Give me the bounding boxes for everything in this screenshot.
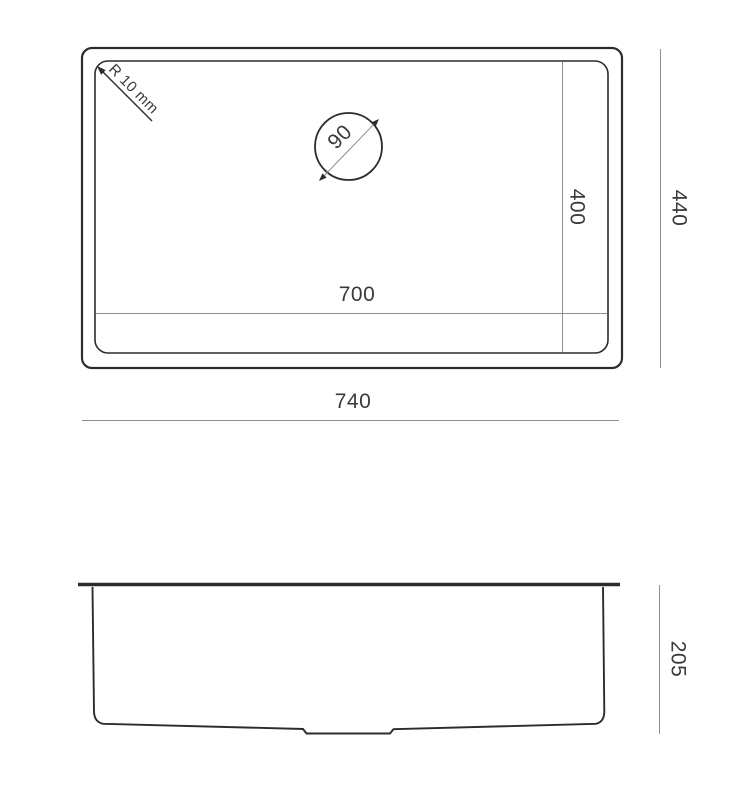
- top-view-outer-rim: [82, 48, 622, 368]
- side-view: 205: [78, 585, 690, 735]
- drain-hole-diameter-label: 90: [323, 120, 356, 153]
- outer-width-label: 740: [335, 390, 372, 413]
- technical-drawing-canvas: 700 400 90 R 10 mm 440 740: [0, 0, 737, 800]
- inner-width-label: 700: [339, 283, 376, 306]
- top-view: 700 400 90 R 10 mm 440 740: [82, 48, 691, 421]
- corner-radius-label: R 10 mm: [105, 61, 162, 118]
- depth-label: 205: [667, 641, 690, 678]
- drain-hole-circle: [315, 113, 382, 180]
- side-view-bowl-profile: [93, 587, 605, 734]
- sink-drawing-svg: 700 400 90 R 10 mm 440 740: [0, 0, 737, 800]
- top-view-inner-bowl: [95, 61, 608, 353]
- outer-height-label: 440: [668, 190, 691, 227]
- inner-height-label: 400: [566, 189, 589, 226]
